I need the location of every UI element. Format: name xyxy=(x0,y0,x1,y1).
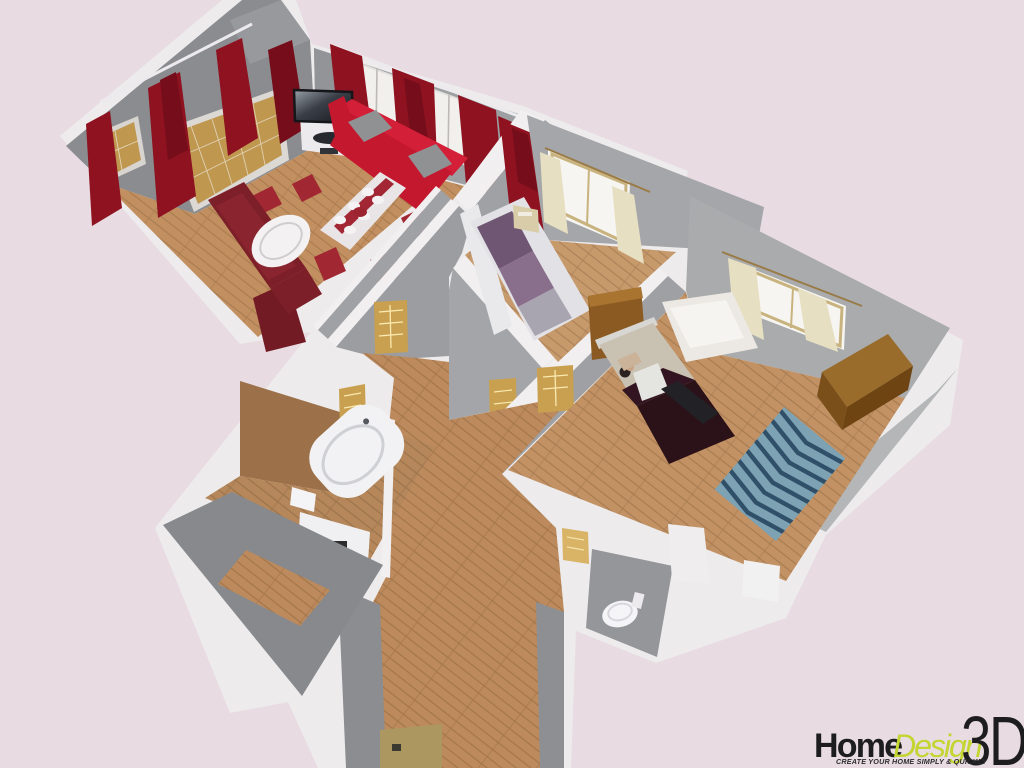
svg-text:CREATE YOUR HOME SIMPLY & QUIC: CREATE YOUR HOME SIMPLY & QUICKLY xyxy=(836,757,988,766)
